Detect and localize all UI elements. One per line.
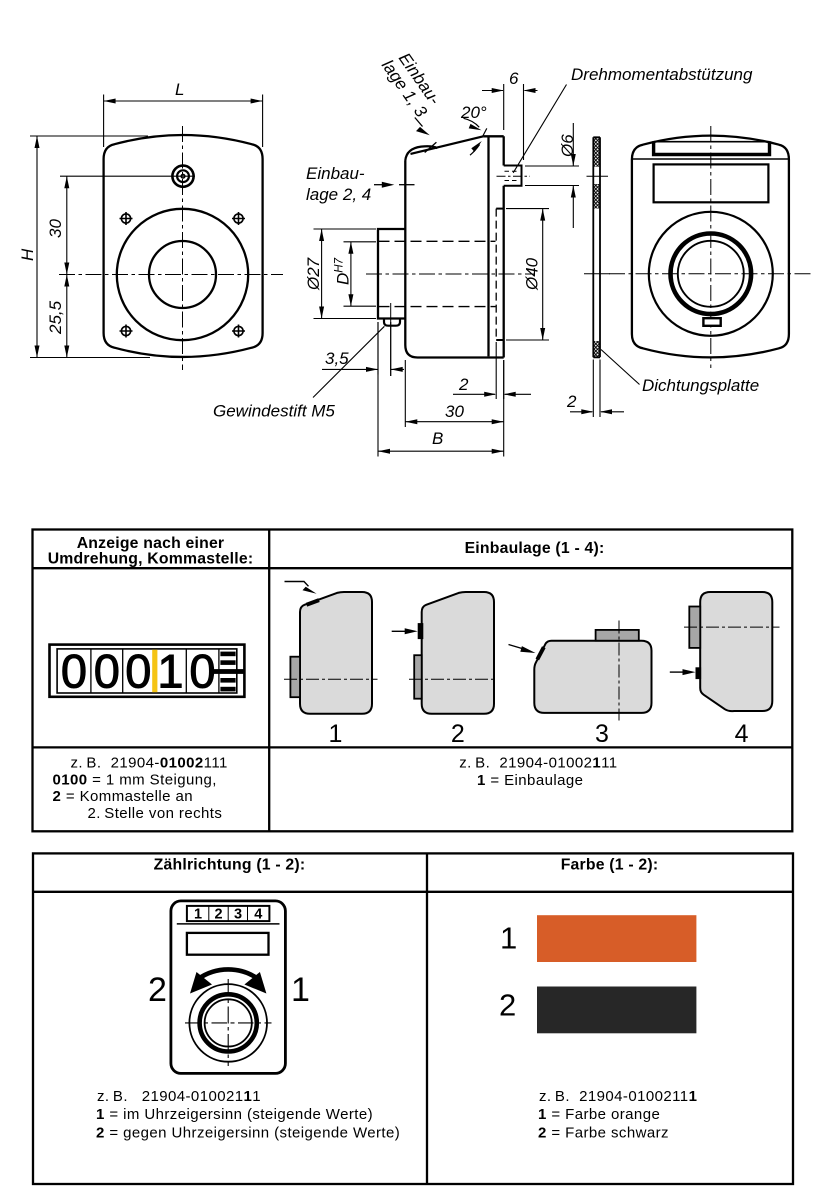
svg-text:1 = Einbaulage: 1 = Einbaulage (477, 772, 583, 789)
svg-text:2 = Farbe schwarz: 2 = Farbe schwarz (538, 1125, 669, 1142)
svg-text:Umdrehung, Kommastelle:: Umdrehung, Kommastelle: (48, 551, 254, 568)
svg-text:H: H (18, 248, 37, 261)
svg-text:z. B. 21904-01002111: z. B. 21904-01002111 (459, 755, 617, 772)
svg-text:0: 0 (189, 645, 215, 698)
svg-text:Anzeige nach einer: Anzeige nach einer (77, 535, 225, 552)
svg-text:4: 4 (735, 720, 749, 748)
svg-text:2: 2 (215, 907, 223, 923)
svg-text:1 = im Uhrzeigersinn (steigend: 1 = im Uhrzeigersinn (steigende Werte) (96, 1106, 373, 1123)
svg-text:0: 0 (125, 645, 151, 698)
svg-text:Zählrichtung (1 - 2):: Zählrichtung (1 - 2): (154, 857, 306, 874)
svg-text:z. B. 21904-01002111: z. B. 21904-01002111 (71, 755, 228, 772)
svg-text:Drehmomentabstützung: Drehmomentabstützung (571, 65, 753, 84)
svg-text:Farbe (1 - 2):: Farbe (1 - 2): (561, 857, 659, 874)
svg-text:Gewindestift M5: Gewindestift M5 (213, 402, 335, 421)
svg-text:1: 1 (291, 971, 310, 1009)
svg-text:25,5: 25,5 (46, 300, 65, 335)
svg-text:6: 6 (509, 69, 519, 88)
svg-text:Einbaulage (1 - 4):: Einbaulage (1 - 4): (465, 540, 605, 557)
svg-text:0100 = 1 mm Steigung,: 0100 = 1 mm Steigung, (53, 771, 217, 788)
svg-text:Ø40: Ø40 (523, 257, 542, 291)
svg-text:Einbau-: Einbau- (306, 164, 365, 183)
svg-text:z. B. 21904-01002111: z. B. 21904-01002111 (539, 1088, 697, 1105)
svg-text:Dichtungsplatte: Dichtungsplatte (642, 376, 759, 395)
svg-text:2 = gegen Uhrzeigersinn (steig: 2 = gegen Uhrzeigersinn (steigende Werte… (96, 1125, 400, 1142)
svg-text:Ø6: Ø6 (558, 134, 577, 158)
svg-text:3: 3 (595, 720, 609, 748)
svg-text:2: 2 (566, 392, 577, 411)
svg-text:4: 4 (254, 907, 262, 923)
svg-text:1 = Farbe orange: 1 = Farbe orange (538, 1106, 660, 1123)
svg-text:1: 1 (157, 645, 183, 698)
svg-text:3,5: 3,5 (325, 349, 349, 368)
svg-text:1: 1 (328, 720, 342, 748)
svg-text:2: 2 (499, 988, 516, 1023)
svg-text:L: L (175, 80, 184, 99)
svg-text:30: 30 (445, 402, 464, 421)
svg-text:3: 3 (234, 907, 242, 923)
svg-text:0: 0 (94, 645, 120, 698)
svg-text:2 = Kommastelle an: 2 = Kommastelle an (53, 788, 194, 805)
svg-text:20°: 20° (460, 103, 487, 122)
svg-text:0: 0 (61, 645, 87, 698)
svg-text:z. B. 21904-01002111: z. B. 21904-01002111 (97, 1088, 261, 1105)
svg-text:2: 2 (458, 375, 469, 394)
svg-text:lage 2, 4: lage 2, 4 (306, 185, 371, 204)
svg-text:30: 30 (46, 219, 65, 238)
svg-text:1: 1 (194, 907, 202, 923)
svg-text:Ø27: Ø27 (304, 257, 323, 291)
svg-text:1: 1 (500, 921, 517, 956)
svg-text:2. Stelle von rechts: 2. Stelle von rechts (88, 805, 223, 822)
svg-text:2: 2 (148, 971, 167, 1009)
svg-text:2: 2 (451, 720, 465, 748)
svg-text:B: B (432, 429, 443, 448)
